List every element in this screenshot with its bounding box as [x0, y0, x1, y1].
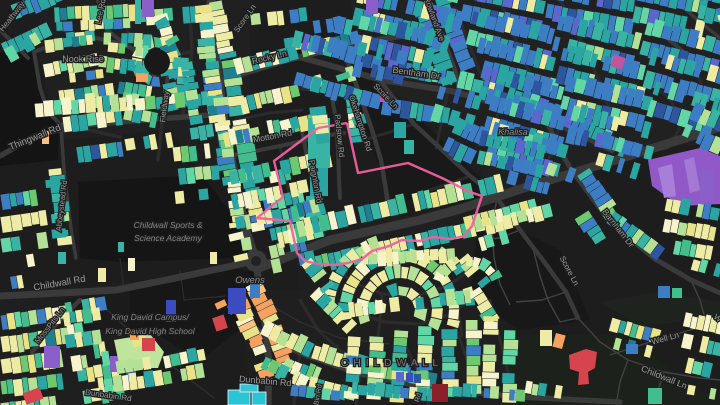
svg-text:Nook Rise: Nook Rise	[62, 54, 104, 64]
svg-text:C H I L D W A L L: C H I L D W A L L	[341, 357, 440, 369]
svg-text:Owens: Owens	[235, 275, 265, 286]
svg-text:Khalisa: Khalisa	[498, 127, 528, 137]
svg-text:King David Campus/: King David Campus/	[111, 312, 190, 322]
svg-text:Science Academy: Science Academy	[134, 233, 202, 243]
svg-text:King David High School: King David High School	[105, 326, 195, 336]
svg-text:Childwall Sports &: Childwall Sports &	[134, 220, 203, 230]
